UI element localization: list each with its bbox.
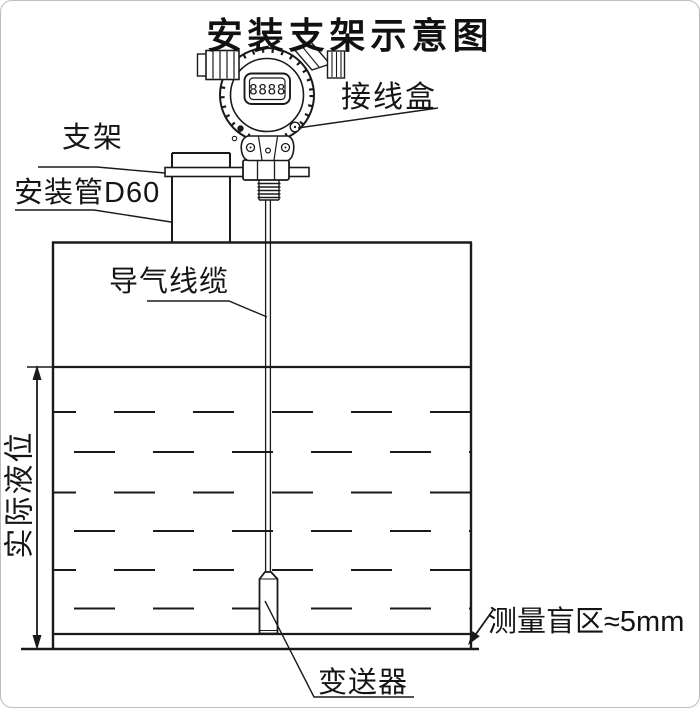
lcd-digits: 8888: [249, 83, 286, 99]
threaded-connector: [258, 180, 281, 200]
label-transmitter: 变送器: [318, 668, 408, 700]
mounting-pipe: [172, 153, 230, 242]
leader-bracket: [38, 167, 165, 173]
label-junction-box: 接线盒: [341, 81, 437, 114]
label-air-cable: 导气线缆: [109, 267, 229, 299]
probe-body: [260, 572, 278, 634]
leader-mounting-pipe: [15, 210, 171, 222]
lcd-display: 8888: [245, 74, 291, 105]
label-blind-zone: 测量盲区≈5mm: [488, 607, 684, 639]
diagram-title: 安装支架示意图: [1, 7, 699, 59]
transmitter-head: 8888: [198, 42, 345, 161]
tank-outline: [21, 242, 479, 649]
label-mounting-pipe: 安装管D60: [14, 178, 160, 210]
leader-air-cable: [147, 301, 267, 317]
sensor-cable: [266, 200, 271, 573]
diagram-page: 8888: [0, 0, 700, 708]
label-bracket: 支架: [62, 123, 124, 155]
neck-flange: [241, 136, 294, 161]
label-actual-level: 实际液位: [4, 429, 37, 561]
hex-nut: [243, 160, 289, 180]
